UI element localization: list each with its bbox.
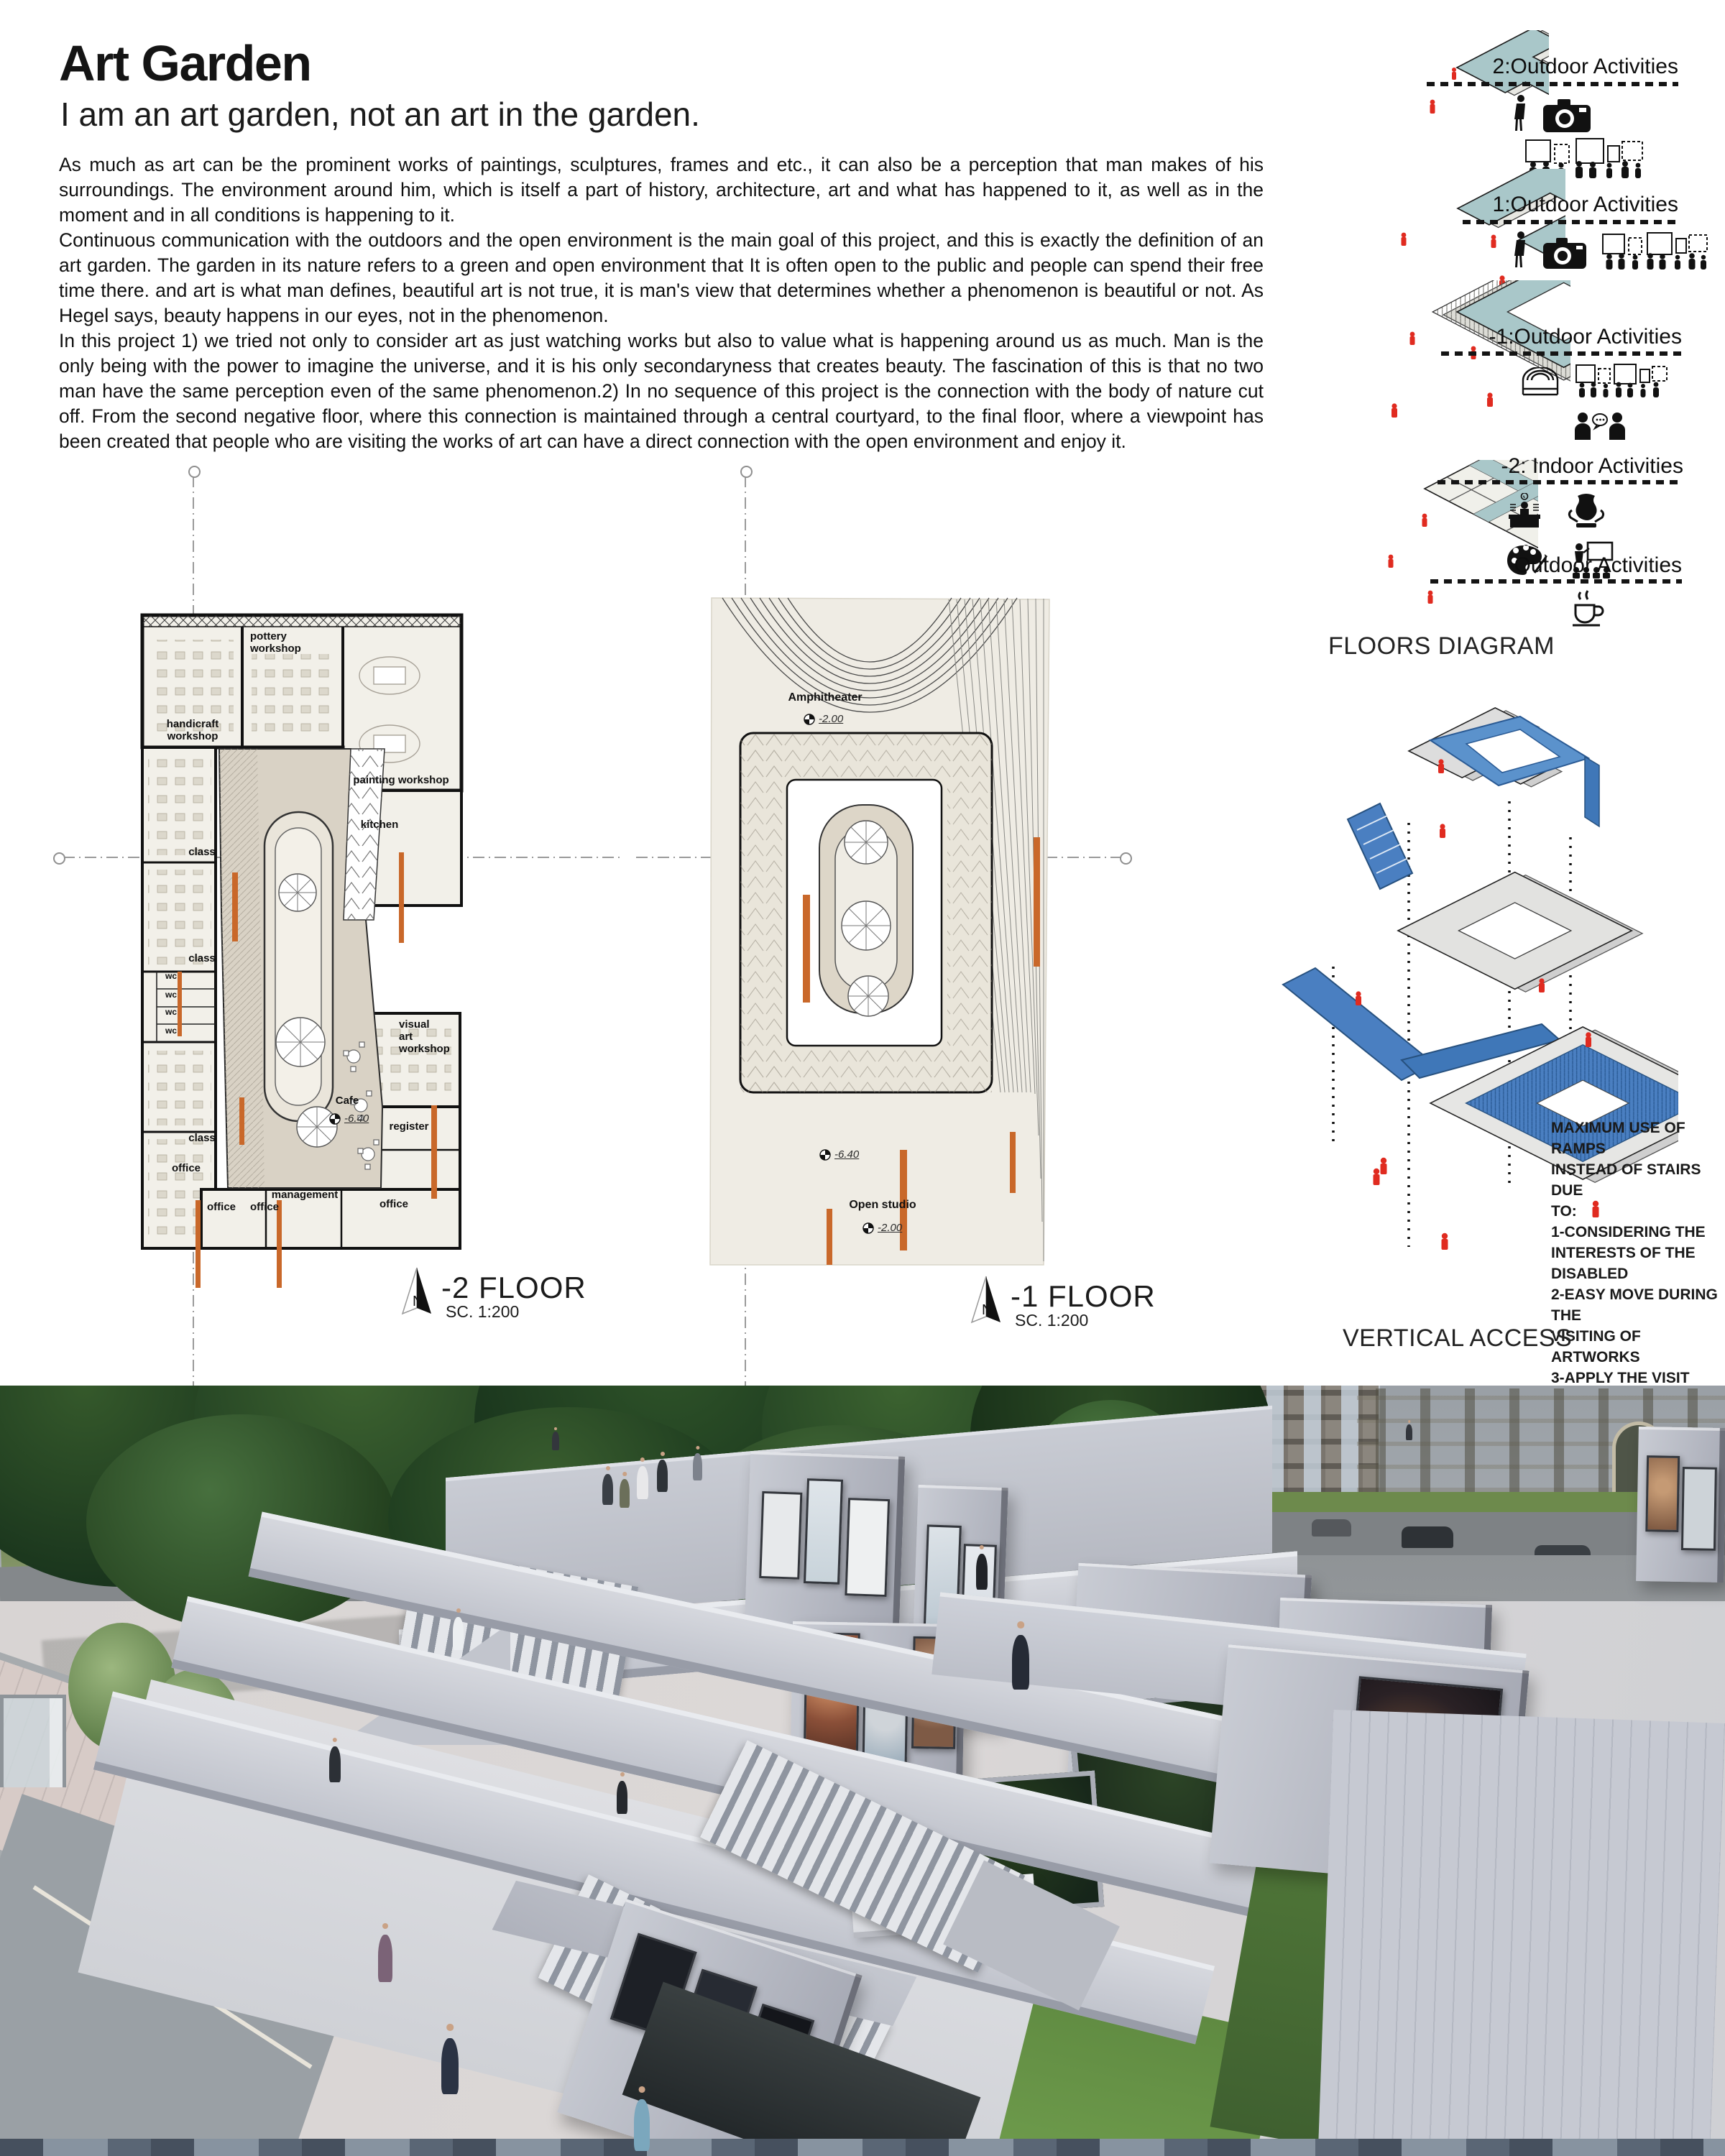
camera-icon — [1542, 236, 1588, 270]
person-figure — [657, 1452, 668, 1492]
page-title: Art Garden — [59, 34, 311, 92]
area-label-amphitheater: Amphitheater — [788, 691, 862, 704]
room-label: painting workshop — [353, 775, 448, 787]
gallery-wall — [1636, 1427, 1725, 1583]
room-label: office — [379, 1199, 408, 1211]
room-label: handicraft workshop — [167, 719, 219, 743]
room-label: visual art workshop — [399, 1019, 450, 1055]
room-label: office — [172, 1163, 201, 1175]
person-figure — [693, 1446, 702, 1480]
vertical-access-caption: VERTICAL ACCESS — [1343, 1325, 1572, 1353]
person-figure — [620, 1472, 630, 1508]
presentation-board: Art Garden I am an art garden, not an ar… — [0, 0, 1725, 2156]
bus-stop-shelter — [0, 1695, 66, 1787]
intro-text: As much as art can be the prominent work… — [59, 152, 1264, 454]
grid-marker — [740, 466, 753, 478]
plan-minus1-title: -1 FLOOR — [1011, 1279, 1156, 1314]
artwork — [804, 1478, 843, 1585]
person-figure — [441, 2024, 459, 2094]
elevation-value: -2.00 — [878, 1222, 902, 1234]
elevation-marker: -6.40 — [329, 1112, 369, 1125]
north-letter: N — [413, 1294, 423, 1310]
artwork — [845, 1498, 890, 1597]
level-symbol-icon — [804, 714, 815, 725]
grid-marker — [1120, 852, 1132, 865]
elevation-value: -6.40 — [834, 1148, 859, 1161]
room-label: class — [188, 953, 216, 965]
elevation-value: -6.40 — [344, 1112, 369, 1125]
person-figure — [1012, 1621, 1029, 1690]
room-label: office — [250, 1202, 279, 1214]
person-figure — [552, 1427, 559, 1450]
page-subtitle: I am an art garden, not an art in the ga… — [60, 95, 700, 134]
elevation-marker: -2.00 — [804, 713, 843, 725]
intro-paragraph-2: Continuous communication with the outdoo… — [59, 228, 1264, 328]
room-label: class — [188, 1133, 216, 1145]
reception-desk-icon — [1506, 493, 1543, 530]
leader-line-level2 — [1427, 82, 1678, 86]
label-level1: 1:Outdoor Activities — [1481, 193, 1678, 217]
level-symbol-icon — [862, 1222, 874, 1234]
label-outdoor-activities: Outdoor Activities — [1481, 553, 1682, 578]
label-level2: 2:Outdoor Activities — [1481, 55, 1678, 79]
room-label: class — [188, 847, 216, 859]
room-label: wc — [165, 1026, 177, 1036]
plan-minus2-title: -2 FLOOR — [441, 1271, 586, 1305]
person-figure — [1406, 1420, 1412, 1440]
room-label: kitchen — [361, 819, 399, 831]
leader-line-level-minus1 — [1441, 351, 1682, 356]
room-label: wc — [165, 972, 177, 981]
room-label: wc — [165, 990, 177, 1000]
person-figure — [976, 1545, 988, 1590]
car — [1402, 1526, 1453, 1548]
room-label: register — [389, 1121, 428, 1133]
artwork-portrait — [1645, 1455, 1680, 1532]
label-level-minus2: -2: Indoor Activities — [1481, 454, 1683, 479]
grid-marker — [188, 466, 201, 478]
exhibition-crowd-icon — [1601, 231, 1709, 270]
cobble-plaza — [1318, 1710, 1725, 2156]
room-label: pottery workshop — [250, 631, 301, 655]
intro-paragraph-1: As much as art can be the prominent work… — [59, 152, 1264, 228]
north-letter: N — [982, 1302, 992, 1319]
level-symbol-icon — [819, 1149, 831, 1161]
room-label: Cafe — [336, 1095, 359, 1107]
car — [1312, 1519, 1351, 1537]
grid-marker — [53, 852, 65, 865]
exterior-render — [0, 1386, 1725, 2156]
amphitheater-icon — [1520, 367, 1560, 399]
person-figure — [634, 2086, 650, 2151]
artwork — [1681, 1467, 1717, 1551]
pottery-icon — [1566, 492, 1606, 530]
exhibition-crowd-icon — [1575, 363, 1668, 399]
elevation-value: -2.00 — [819, 713, 843, 725]
leader-line-outdoor — [1430, 579, 1682, 584]
icons-level1 — [1513, 230, 1709, 274]
photographer-icon — [1513, 230, 1529, 270]
icons-level-minus1 — [1520, 363, 1668, 443]
artwork — [759, 1491, 802, 1580]
room-label: office — [207, 1202, 236, 1214]
intro-paragraph-3: In this project 1) we tried not only to … — [59, 328, 1264, 454]
gallery-wall — [745, 1451, 905, 1632]
person-figure — [602, 1466, 613, 1505]
photographer-icon — [1513, 93, 1529, 134]
floors-diagram-caption: FLOORS DIAGRAM — [1328, 632, 1555, 660]
lower-gallery-strip — [0, 2139, 1725, 2156]
person-figure — [617, 1772, 627, 1814]
elevation-marker: -6.40 — [819, 1148, 859, 1161]
plan-minus2-scale: SC. 1:200 — [446, 1302, 519, 1322]
leader-line-level-minus2 — [1437, 480, 1683, 484]
plan-minus1-scale: SC. 1:200 — [1015, 1311, 1088, 1330]
person-figure — [329, 1738, 341, 1782]
label-level-minus1: -1:Outdoor Activities — [1481, 325, 1682, 349]
plan-minus2-drawing — [137, 611, 474, 1315]
person-figure — [453, 1608, 464, 1650]
room-label: wc — [165, 1008, 177, 1017]
area-label-open-studio: Open studio — [849, 1199, 916, 1212]
room-label: management — [272, 1189, 339, 1202]
coffee-cup-icon — [1568, 589, 1606, 628]
conversation-icon — [1573, 411, 1627, 440]
person-figure — [637, 1457, 648, 1499]
person-figure — [378, 1923, 392, 1982]
level-symbol-icon — [329, 1113, 341, 1125]
camera-icon — [1542, 96, 1592, 134]
elevation-marker: -2.00 — [862, 1222, 902, 1234]
leader-line-level1 — [1463, 220, 1678, 224]
